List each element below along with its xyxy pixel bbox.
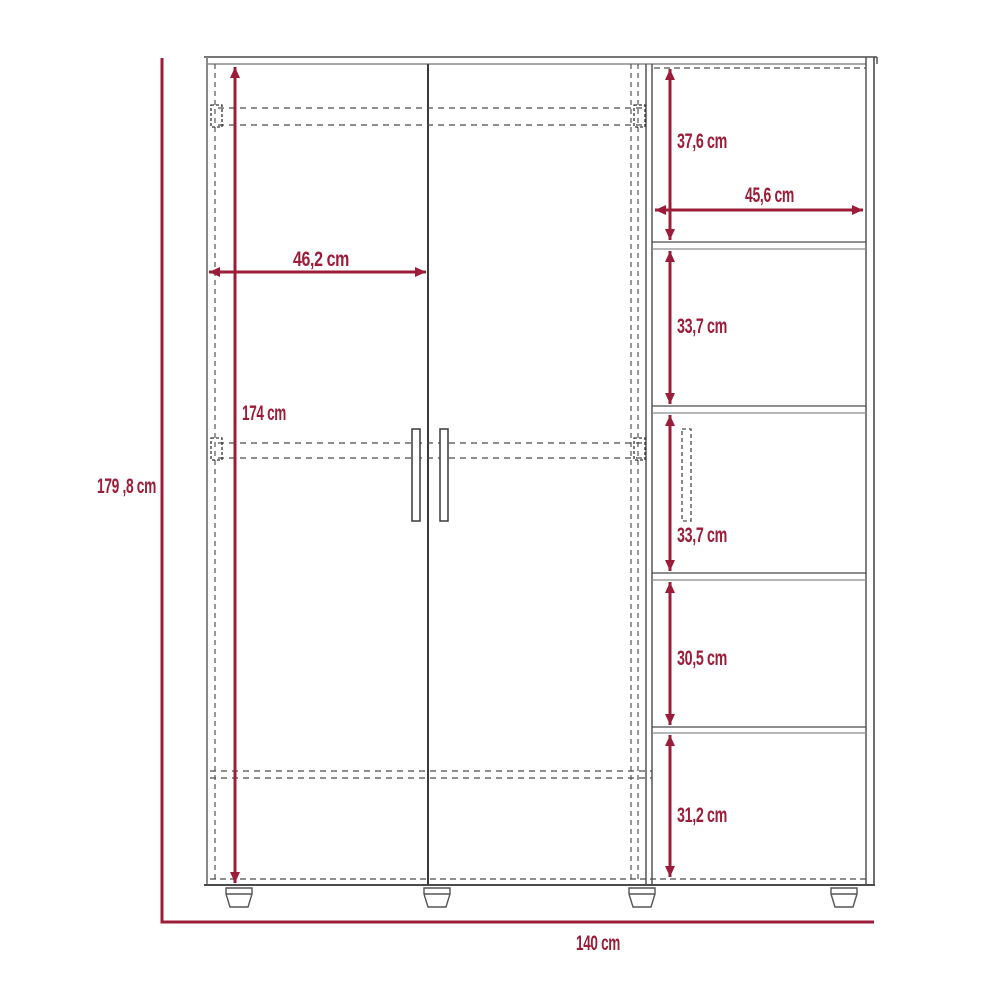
dimension-labels: 179 ,8 cm 174 cm 46,2 cm 37,6 cm 45,6 cm… [97,130,794,955]
dimension-diagram-page: 179 ,8 cm 174 cm 46,2 cm 37,6 cm 45,6 cm… [0,0,1000,1000]
foot [226,888,252,907]
label-overall-width: 140 cm [576,932,620,955]
foot [629,888,655,907]
label-shelf-width: 45,6 cm [745,184,794,207]
foot [831,888,857,907]
label-section-1: 37,6 cm [677,130,727,153]
right-door-handle [440,429,448,521]
cabinet-left-side [207,57,215,886]
label-door-width: 46,2 cm [293,248,349,271]
shelf-line-2 [652,406,866,413]
label-door-height: 174 cm [242,402,286,425]
interior-shelf-dashed [210,771,652,778]
door-hidden-edge [631,64,638,879]
label-section-5: 31,2 cm [677,804,727,827]
shelf-line-4 [652,727,866,733]
label-section-4: 30,5 cm [677,647,727,670]
foot [424,888,450,907]
cabinet-top-panel [204,57,877,64]
shelf-line-3 [652,573,866,580]
divider-panel [646,64,652,885]
cabinet-bottom-panel [204,879,875,885]
label-section-2: 33,7 cm [677,315,727,338]
left-door-handle [412,429,420,521]
hinge-icon [634,438,645,460]
label-section-3: 33,7 cm [677,524,727,547]
shelf-line-1 [652,242,866,249]
cabinet-right-side [866,57,874,886]
hinge-icon [211,438,222,460]
label-overall-height: 179 ,8 cm [97,475,156,498]
shelf-support-dashed [682,429,691,521]
wardrobe-dimension-diagram: 179 ,8 cm 174 cm 46,2 cm 37,6 cm 45,6 cm… [0,0,1000,1000]
cabinet-feet [226,888,857,907]
